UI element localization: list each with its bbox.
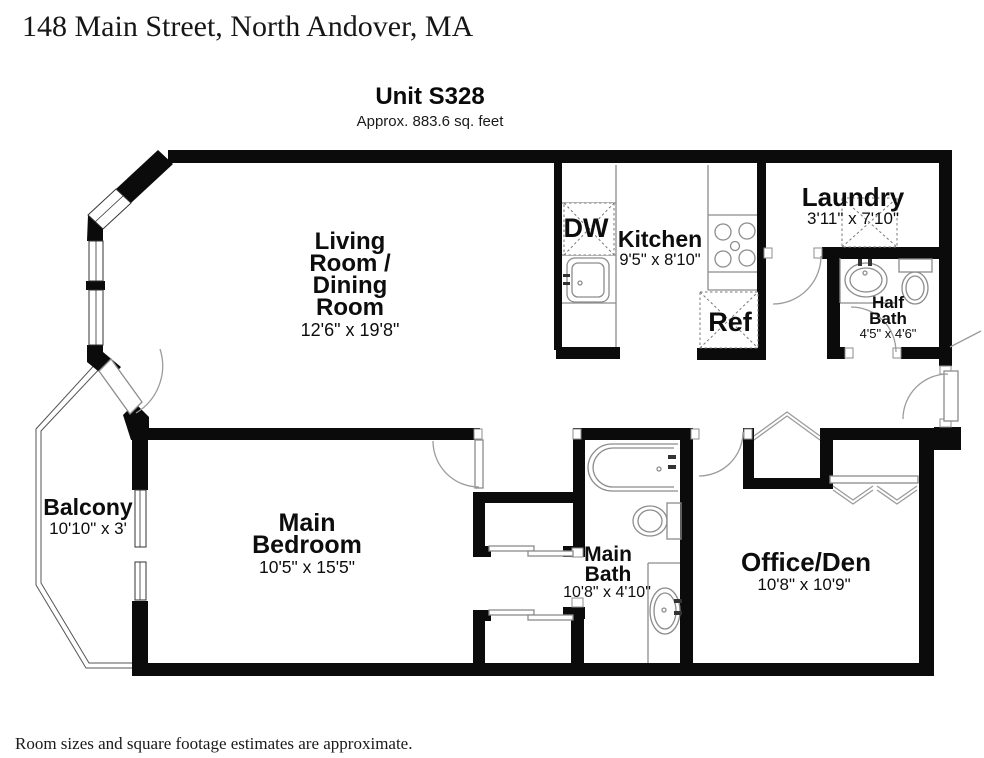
svg-text:Laundry: Laundry [802,182,905,212]
svg-text:Ref: Ref [708,307,753,337]
office-door [691,429,752,476]
label-main-bedroom: Main Bedroom 10'5" x 15'5" [252,509,362,577]
office-closet-bifold-doors [830,476,918,504]
bedroom-closet-sliding-doors [489,546,573,620]
svg-text:4'5" x 4'6": 4'5" x 4'6" [860,326,917,341]
main-bath-toilet [633,503,681,539]
svg-text:10'10" x 3': 10'10" x 3' [49,519,127,538]
svg-text:10'8" x 10'9": 10'8" x 10'9" [757,575,850,594]
svg-text:12'6" x 19'8": 12'6" x 19'8" [301,320,400,340]
bay-window [88,189,131,345]
label-laundry: Laundry 3'11" x 7'10" [802,182,905,228]
label-living-dining: Living Room / Dining Room 12'6" x 19'8" [301,228,400,340]
kitchen-counter-left [562,165,616,347]
label-office-den: Office/Den 10'8" x 10'9" [741,547,871,594]
svg-text:3'11" x 7'10": 3'11" x 7'10" [807,209,899,228]
svg-text:Bath: Bath [585,563,632,586]
svg-text:Balcony: Balcony [43,494,133,520]
svg-text:10'8" x 4'10": 10'8" x 4'10" [563,584,651,601]
main-bath-sink [648,563,682,663]
bedroom-windows [135,490,146,600]
svg-text:Room: Room [316,294,384,321]
hall-closet-bifold-door [754,412,820,440]
kitchen-counter-right [708,165,757,290]
bathtub [588,444,678,491]
label-dishwasher: DW [564,213,609,243]
label-refrigerator: Ref [708,307,753,337]
label-half-bath: Half Bath 4'5" x 4'6" [860,293,917,341]
svg-text:Bedroom: Bedroom [252,531,362,559]
label-kitchen: Kitchen 9'5" x 8'10" [618,226,702,269]
kitchen-sink [563,258,609,302]
laundry-door [764,248,822,304]
outer-walls [86,150,961,676]
stove [715,223,755,267]
svg-text:Kitchen: Kitchen [618,226,702,252]
floor-plan-drawing: Living Room / Dining Room 12'6" x 19'8" … [0,0,984,758]
label-balcony: Balcony 10'10" x 3' [43,494,133,538]
floor-plan-page: 148 Main Street, North Andover, MA Unit … [0,0,984,758]
interior-walls [132,163,952,676]
svg-text:10'5" x 15'5": 10'5" x 15'5" [259,557,355,577]
svg-text:9'5" x 8'10": 9'5" x 8'10" [619,251,700,269]
svg-text:Office/Den: Office/Den [741,547,871,577]
svg-text:DW: DW [564,213,609,243]
